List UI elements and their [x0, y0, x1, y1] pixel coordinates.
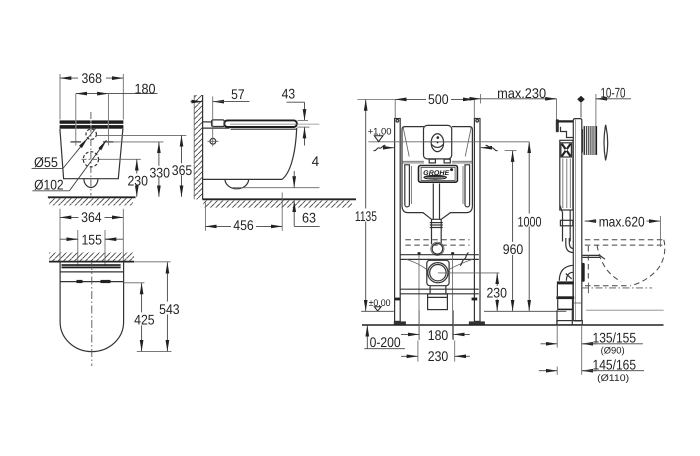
- svg-text:368: 368: [81, 70, 102, 86]
- svg-text:63: 63: [302, 210, 316, 226]
- svg-text:180: 180: [428, 327, 449, 343]
- svg-text:max.620: max.620: [599, 213, 645, 229]
- svg-text:456: 456: [233, 217, 254, 233]
- svg-text:43: 43: [282, 86, 296, 102]
- svg-text:500: 500: [428, 91, 449, 107]
- svg-text:(Ø90): (Ø90): [601, 345, 625, 356]
- svg-text:365: 365: [172, 162, 193, 178]
- svg-text:(Ø110): (Ø110): [597, 373, 629, 384]
- svg-text:155: 155: [81, 232, 102, 248]
- svg-text:180: 180: [135, 80, 156, 96]
- svg-text:230: 230: [486, 285, 507, 301]
- svg-text:230: 230: [428, 348, 449, 364]
- svg-text:0-200: 0-200: [370, 334, 401, 350]
- svg-text:±0,00: ±0,00: [369, 298, 391, 309]
- svg-text:max.230: max.230: [497, 85, 546, 101]
- svg-text:1000: 1000: [518, 214, 542, 230]
- svg-text:425: 425: [134, 312, 155, 328]
- svg-text:4: 4: [312, 153, 320, 169]
- svg-text:135/155: 135/155: [593, 329, 637, 345]
- svg-text:1135: 1135: [355, 208, 377, 224]
- svg-text:364: 364: [81, 209, 102, 225]
- svg-text:230: 230: [127, 172, 148, 188]
- svg-text:Ø102: Ø102: [34, 176, 64, 192]
- svg-text:10-70: 10-70: [601, 84, 626, 100]
- svg-text:330: 330: [149, 165, 170, 181]
- svg-text:543: 543: [159, 301, 180, 317]
- svg-text:Ø55: Ø55: [34, 154, 58, 170]
- svg-text:57: 57: [231, 86, 245, 102]
- svg-text:145/165: 145/165: [593, 356, 637, 372]
- svg-text:960: 960: [503, 241, 524, 257]
